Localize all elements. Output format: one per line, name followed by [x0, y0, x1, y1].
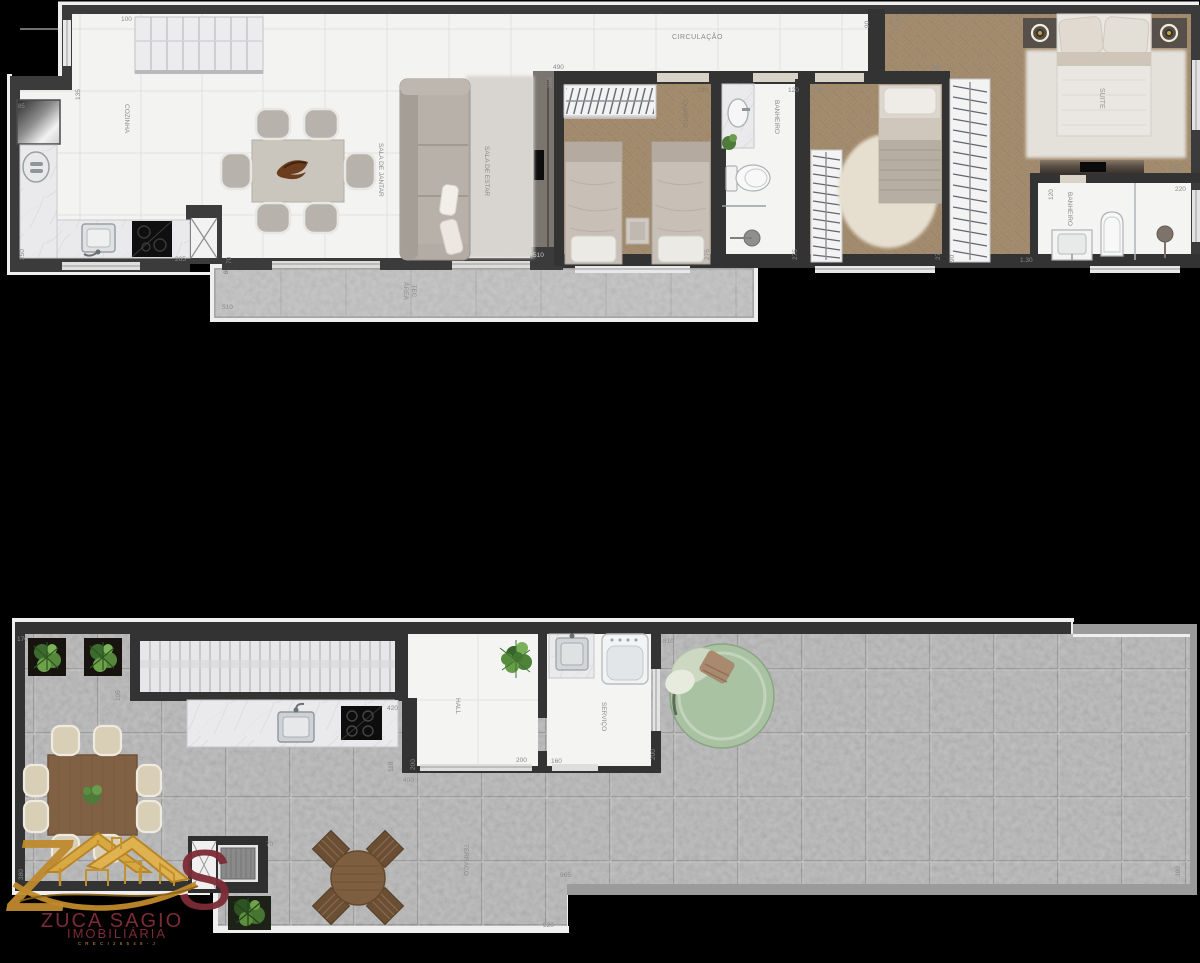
svg-text:220: 220 — [1175, 186, 1186, 193]
svg-text:90: 90 — [949, 254, 956, 262]
svg-text:SERVIÇO: SERVIÇO — [600, 702, 607, 731]
svg-text:SALA DE JANTAR: SALA DE JANTAR — [377, 143, 384, 197]
svg-text:BANHEIRO: BANHEIRO — [1066, 192, 1073, 226]
svg-text:COZINHA: COZINHA — [123, 104, 130, 134]
svg-text:275: 275 — [704, 249, 711, 260]
svg-text:230: 230 — [697, 87, 708, 94]
svg-text:400: 400 — [403, 777, 414, 784]
svg-text:HALL: HALL — [454, 698, 461, 715]
svg-text:160: 160 — [551, 758, 562, 765]
svg-text:S: S — [176, 833, 233, 928]
svg-text:420: 420 — [387, 705, 398, 712]
svg-text:70: 70 — [226, 256, 233, 264]
svg-text:135: 135 — [75, 89, 82, 100]
svg-text:105: 105 — [115, 690, 122, 701]
svg-text:380: 380 — [1175, 866, 1182, 877]
svg-text:470: 470 — [890, 18, 901, 25]
svg-text:235: 235 — [1170, 167, 1181, 174]
svg-text:CIRCULAÇÃO: CIRCULAÇÃO — [672, 32, 723, 41]
svg-text:200: 200 — [516, 757, 527, 764]
svg-text:510: 510 — [533, 252, 544, 259]
svg-text:100: 100 — [121, 16, 132, 23]
svg-text:200: 200 — [813, 87, 824, 94]
svg-text:C R E C I 2 6 5 4 8 - J: C R E C I 2 6 5 4 8 - J — [78, 941, 157, 946]
svg-text:250: 250 — [19, 249, 26, 260]
svg-text:TERRAÇO: TERRAÇO — [462, 844, 469, 876]
svg-text:SUITE: SUITE — [1098, 88, 1105, 109]
svg-text:BANHEIRO: BANHEIRO — [773, 100, 780, 134]
svg-text:200: 200 — [410, 759, 417, 770]
svg-text:520: 520 — [543, 922, 554, 929]
svg-text:490: 490 — [553, 64, 564, 71]
svg-text:200: 200 — [650, 749, 657, 760]
svg-text:120: 120 — [788, 87, 799, 94]
svg-text:1.30: 1.30 — [1020, 257, 1033, 264]
svg-text:265: 265 — [175, 256, 186, 263]
svg-text:SALA DE ESTAR: SALA DE ESTAR — [483, 146, 490, 196]
svg-text:IMOBILIÁRIA: IMOBILIÁRIA — [67, 926, 167, 941]
svg-text:105: 105 — [930, 65, 941, 72]
svg-text:810: 810 — [663, 638, 674, 645]
svg-text:85: 85 — [18, 104, 25, 110]
svg-text:275: 275 — [792, 249, 799, 260]
svg-text:90: 90 — [864, 20, 871, 28]
svg-text:290: 290 — [547, 77, 554, 88]
svg-text:70: 70 — [266, 841, 274, 848]
svg-text:QUARTO: QUARTO — [681, 100, 688, 128]
svg-text:170: 170 — [17, 636, 28, 643]
svg-text:965: 965 — [560, 872, 571, 879]
svg-text:110: 110 — [388, 761, 395, 772]
svg-text:120: 120 — [1048, 189, 1055, 200]
svg-text:275: 275 — [935, 249, 942, 260]
